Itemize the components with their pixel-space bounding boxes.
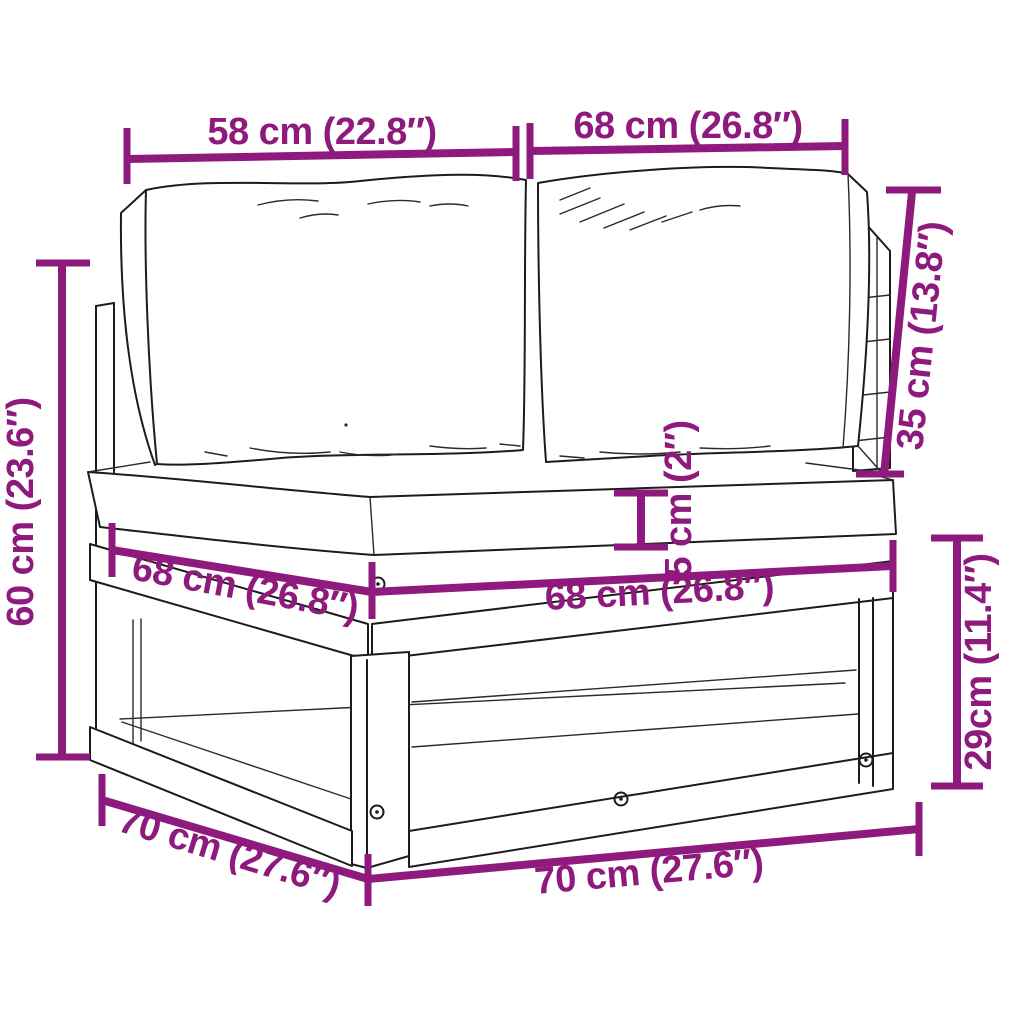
product-dimension-diagram: 58 cm (22.8″) 68 cm (26.8″) 35 cm (13.8″… (0, 0, 1024, 1024)
sofa-dimensions-drawing: 58 cm (22.8″) 68 cm (26.8″) 35 cm (13.8″… (0, 0, 1024, 1024)
back-cushion-right (538, 167, 882, 473)
base-corner-post (351, 652, 409, 868)
dim-label-base-height: 29cm (11.4″) (958, 553, 1000, 770)
back-cushion-left (121, 175, 526, 465)
dim-label-overall-height: 60 cm (23.6″) (0, 397, 42, 626)
dim-label-seat-cushion-thickness: 5 cm (2″) (658, 420, 700, 577)
dim-label-backrest-left-width: 58 cm (22.8″) (207, 111, 436, 153)
dim-label-backrest-right-width: 68 cm (26.8″) (573, 105, 802, 147)
